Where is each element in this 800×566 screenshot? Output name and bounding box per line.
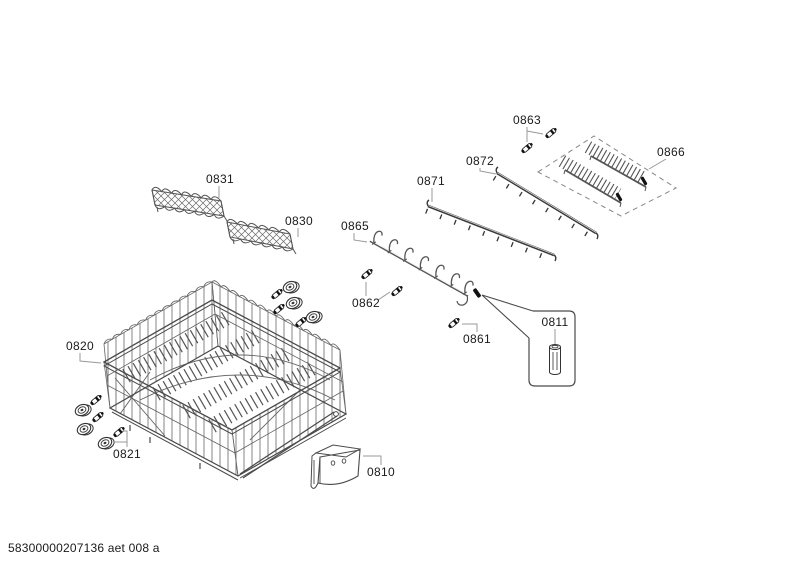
axle-clip — [113, 426, 126, 438]
tray-0810-drawing — [311, 445, 360, 488]
part-label-0872: 0872 — [464, 154, 496, 168]
part-label-0830: 0830 — [283, 214, 315, 228]
axle-clip — [92, 411, 105, 423]
part-label-0861: 0861 — [461, 332, 493, 346]
part-label-0820: 0820 — [64, 339, 96, 353]
callout-box-0811 — [482, 295, 575, 386]
cap-part-0811-drawing — [550, 345, 561, 375]
axle-clip — [273, 303, 286, 315]
part-label-0865: 0865 — [339, 219, 371, 233]
fastening-clip — [361, 268, 374, 280]
part-label-0821: 0821 — [111, 447, 143, 461]
tine-rack-0831-drawing — [152, 187, 227, 221]
roller-wheel — [75, 420, 94, 437]
fastening-clip — [391, 285, 404, 297]
roller-wheel — [73, 401, 92, 418]
document-code: 58300000207136 aet 008 a — [8, 541, 160, 555]
roller-wheel — [304, 308, 323, 325]
roller-wheel — [284, 294, 303, 311]
part-label-0862: 0862 — [350, 296, 382, 310]
roller-wheel — [281, 278, 300, 295]
exploded-parts-diagram-page: 0831 0830 0820 0821 0810 0811 0861 0862 … — [0, 0, 800, 566]
part-label-0831: 0831 — [204, 172, 236, 186]
axle-clip — [295, 316, 308, 328]
part-label-0811: 0811 — [539, 315, 571, 329]
fastening-clip — [521, 142, 534, 154]
axle-clip — [90, 394, 103, 406]
clips-0863-group — [521, 127, 558, 154]
fastening-clip — [545, 127, 558, 139]
part-label-0810: 0810 — [365, 465, 397, 479]
clips-0862-group — [361, 268, 404, 297]
clip-0861 — [448, 317, 461, 329]
axle-clip — [271, 288, 284, 300]
part-label-0866: 0866 — [655, 145, 687, 159]
rail-0871-drawing — [426, 200, 556, 261]
part-label-0863: 0863 — [511, 113, 543, 127]
parts-diagram — [0, 0, 800, 566]
part-label-0871: 0871 — [415, 174, 447, 188]
